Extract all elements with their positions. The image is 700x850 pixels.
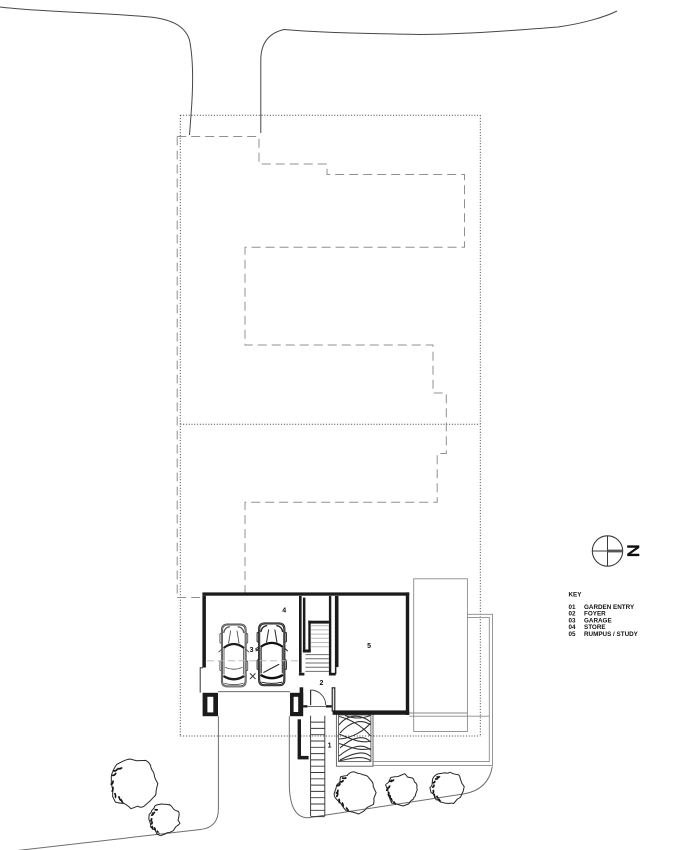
svg-text:05: 05 — [569, 631, 577, 638]
svg-text:2: 2 — [320, 680, 324, 687]
svg-text:4: 4 — [282, 607, 286, 614]
svg-text:5: 5 — [367, 643, 371, 650]
svg-text:RUMPUS / STUDY: RUMPUS / STUDY — [584, 631, 639, 638]
svg-text:1: 1 — [328, 742, 332, 749]
svg-text:3: 3 — [250, 647, 254, 654]
svg-text:KEY: KEY — [569, 592, 583, 599]
